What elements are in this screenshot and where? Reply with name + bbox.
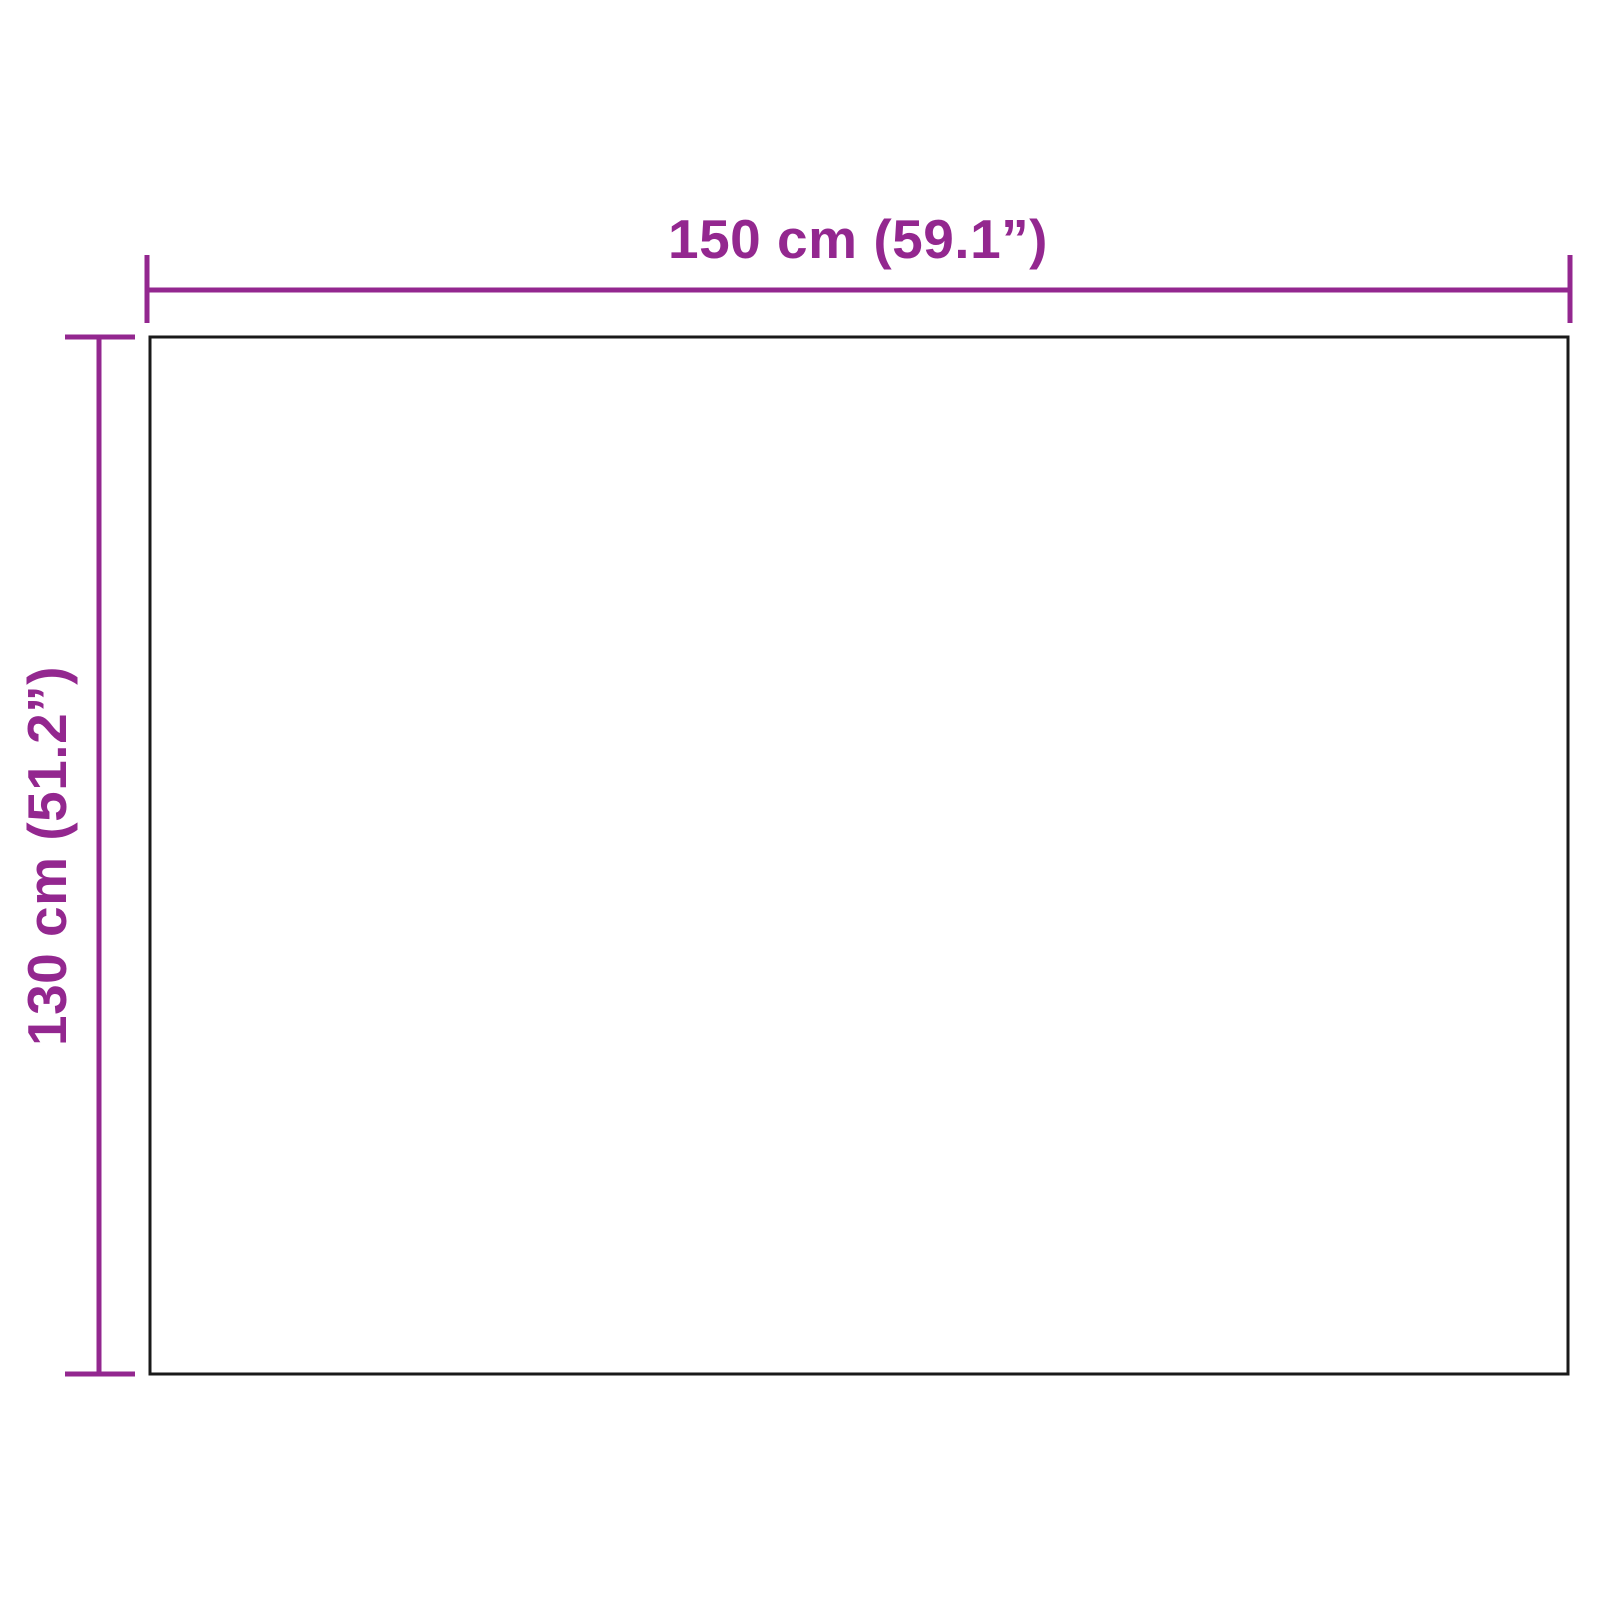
width-dimension-label: 150 cm (59.1”) bbox=[668, 208, 1048, 270]
product-outline-rect bbox=[150, 337, 1568, 1374]
width-dimension: 150 cm (59.1”) bbox=[147, 208, 1570, 323]
height-dimension-label: 130 cm (51.2”) bbox=[16, 666, 78, 1046]
dimension-diagram-canvas: 150 cm (59.1”) 130 cm (51.2”) bbox=[0, 0, 1600, 1600]
height-dimension: 130 cm (51.2”) bbox=[16, 337, 135, 1374]
dimension-diagram: 150 cm (59.1”) 130 cm (51.2”) bbox=[0, 0, 1600, 1600]
